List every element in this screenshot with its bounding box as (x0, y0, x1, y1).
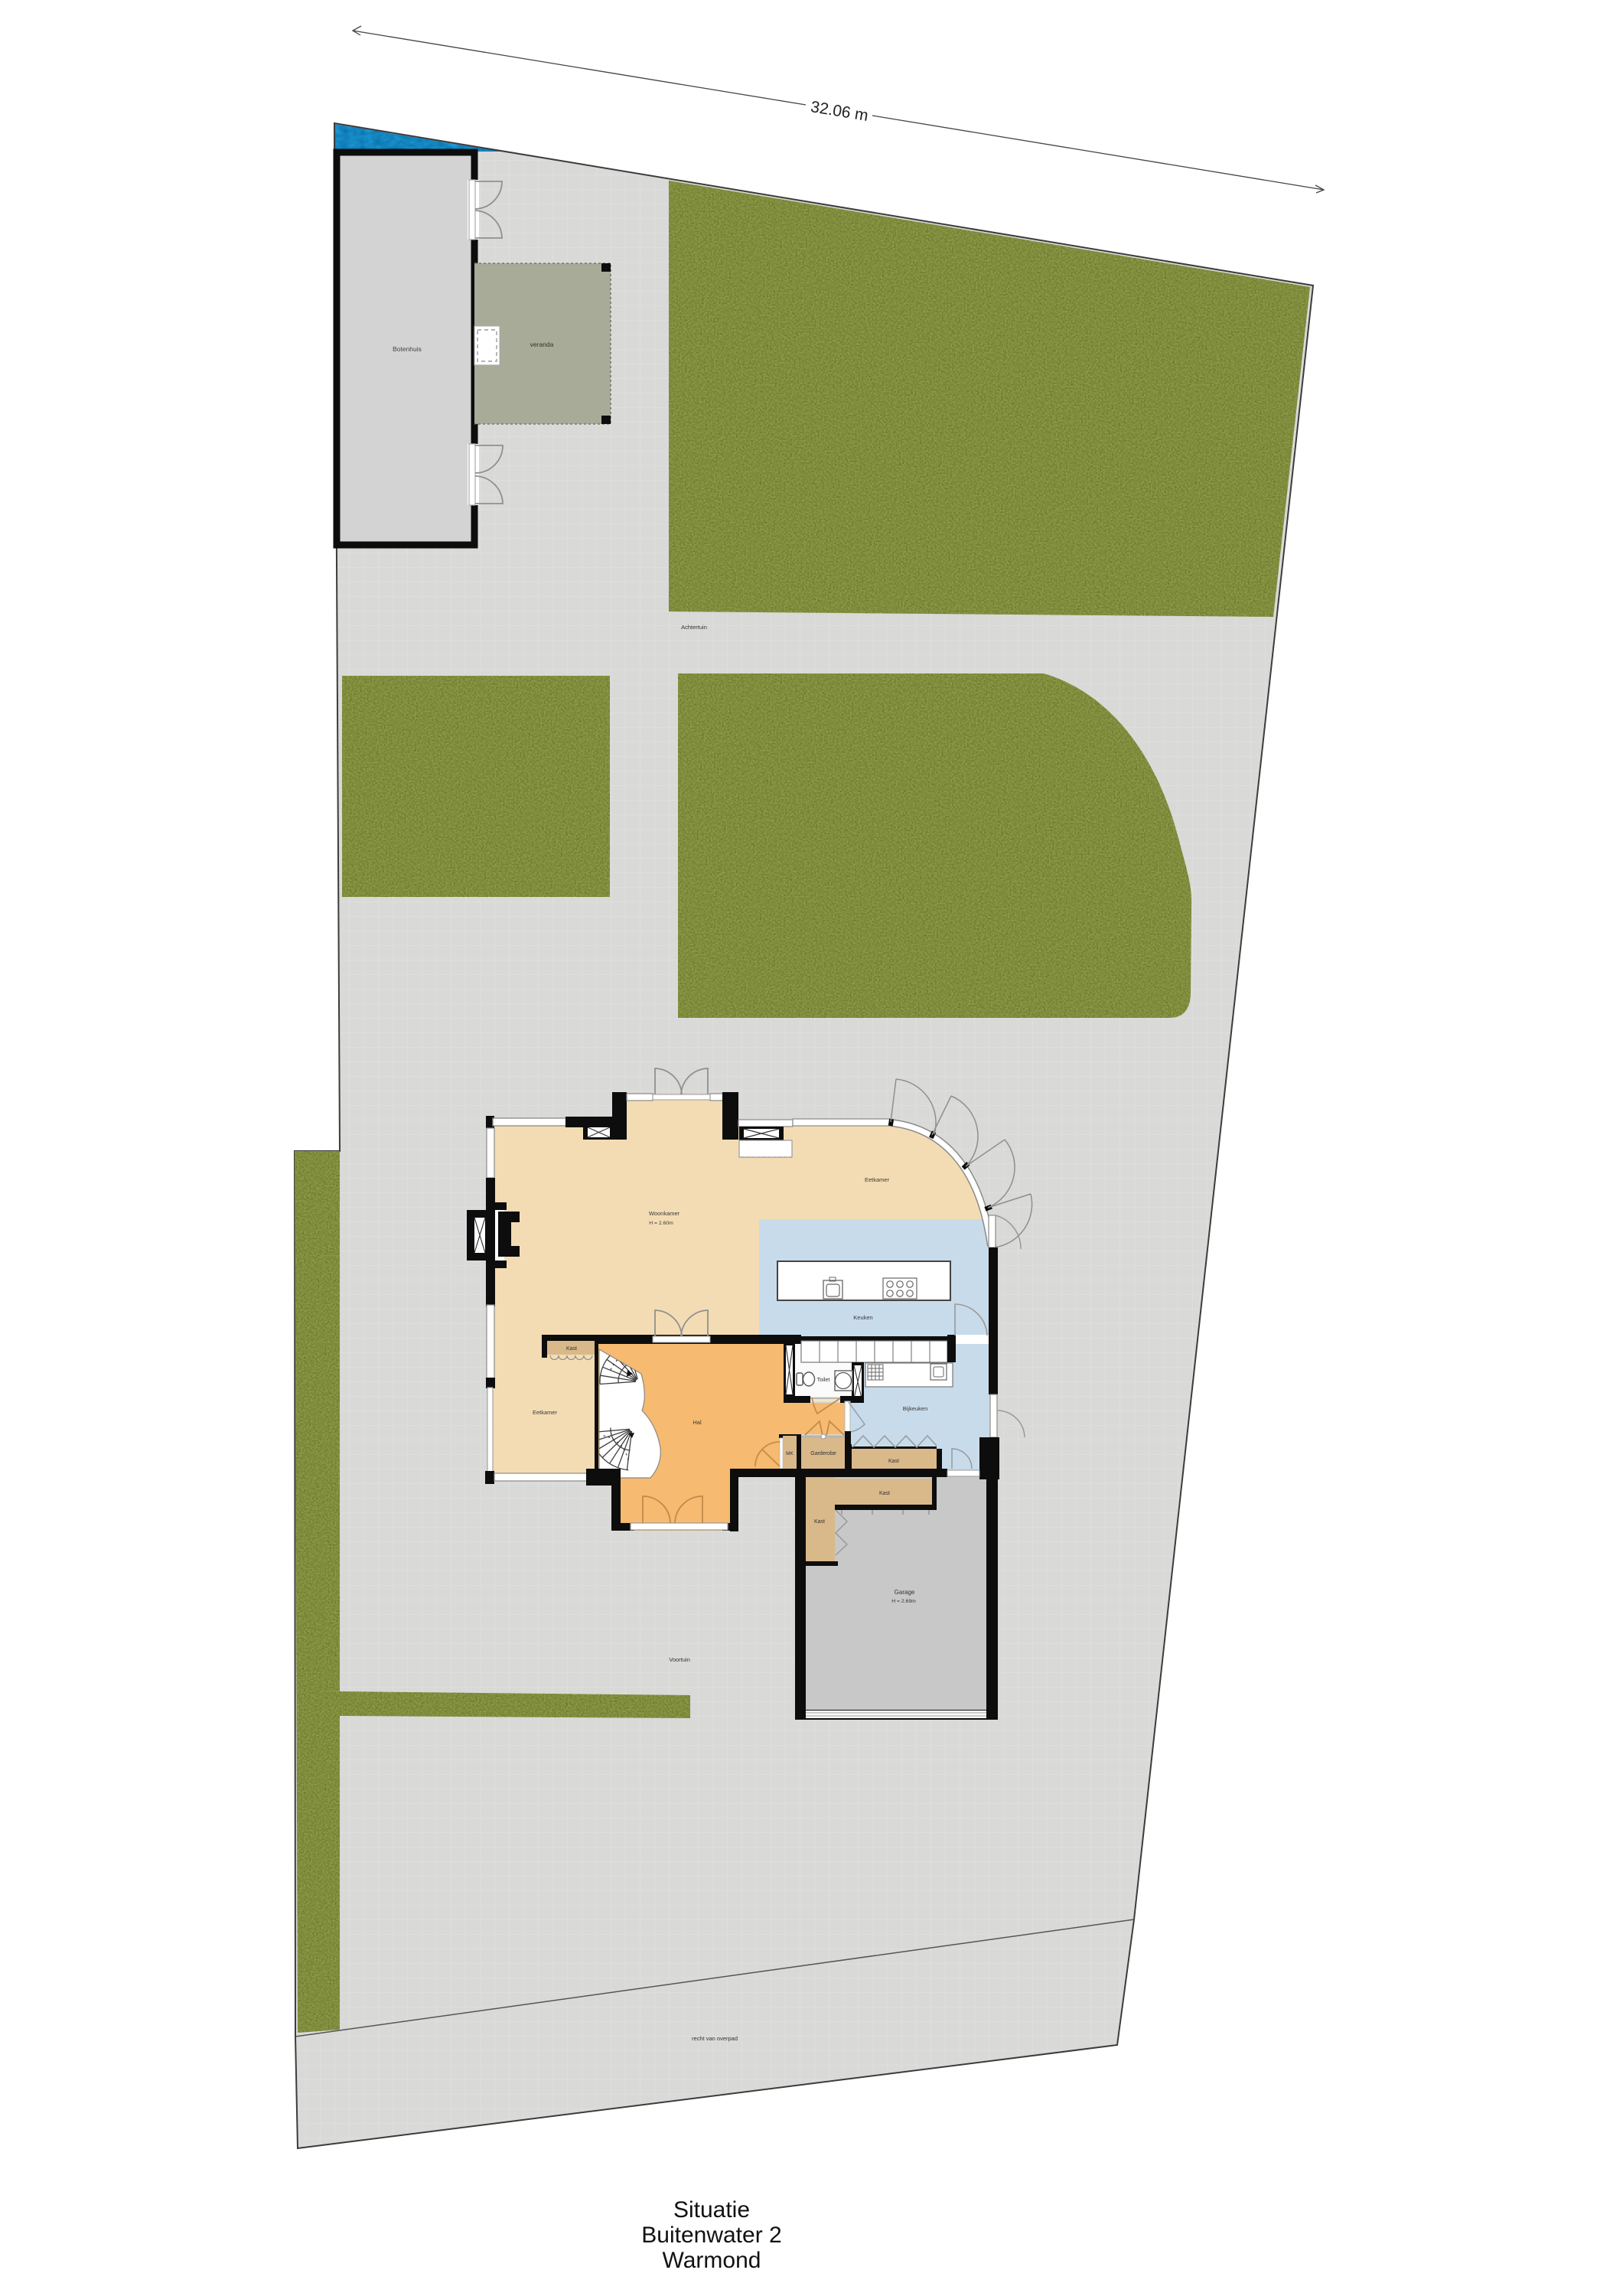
svg-text:H = 2.69m: H = 2.69m (891, 1599, 916, 1604)
svg-text:MK: MK (786, 1451, 794, 1456)
svg-text:Kast: Kast (814, 1519, 825, 1525)
svg-text:Woonkamer: Woonkamer (649, 1210, 680, 1217)
svg-text:Eetkamer: Eetkamer (865, 1176, 890, 1183)
svg-text:Eetkamer: Eetkamer (533, 1409, 558, 1416)
svg-text:Garderobe: Garderobe (810, 1451, 836, 1456)
svg-text:Toilet: Toilet (817, 1376, 830, 1383)
svg-text:Achtertuin: Achtertuin (681, 624, 707, 631)
svg-text:Botenhuis: Botenhuis (393, 345, 422, 353)
svg-text:recht van overpad: recht van overpad (692, 2035, 738, 2042)
svg-text:Hal: Hal (693, 1419, 702, 1426)
svg-text:Garage: Garage (895, 1589, 915, 1596)
svg-text:Kast: Kast (879, 1491, 890, 1496)
svg-text:H = 2.60m: H = 2.60m (649, 1221, 673, 1226)
svg-text:Bijkeuken: Bijkeuken (903, 1405, 928, 1412)
svg-text:Keuken: Keuken (853, 1314, 872, 1321)
svg-text:Situatie: Situatie (673, 2197, 750, 2223)
svg-text:veranda: veranda (530, 341, 554, 348)
svg-text:Kast: Kast (888, 1459, 899, 1464)
svg-text:Kast: Kast (566, 1346, 577, 1352)
svg-text:Voortuin: Voortuin (669, 1656, 690, 1663)
svg-text:Buitenwater 2: Buitenwater 2 (641, 2223, 781, 2248)
svg-text:Warmond: Warmond (663, 2248, 761, 2273)
